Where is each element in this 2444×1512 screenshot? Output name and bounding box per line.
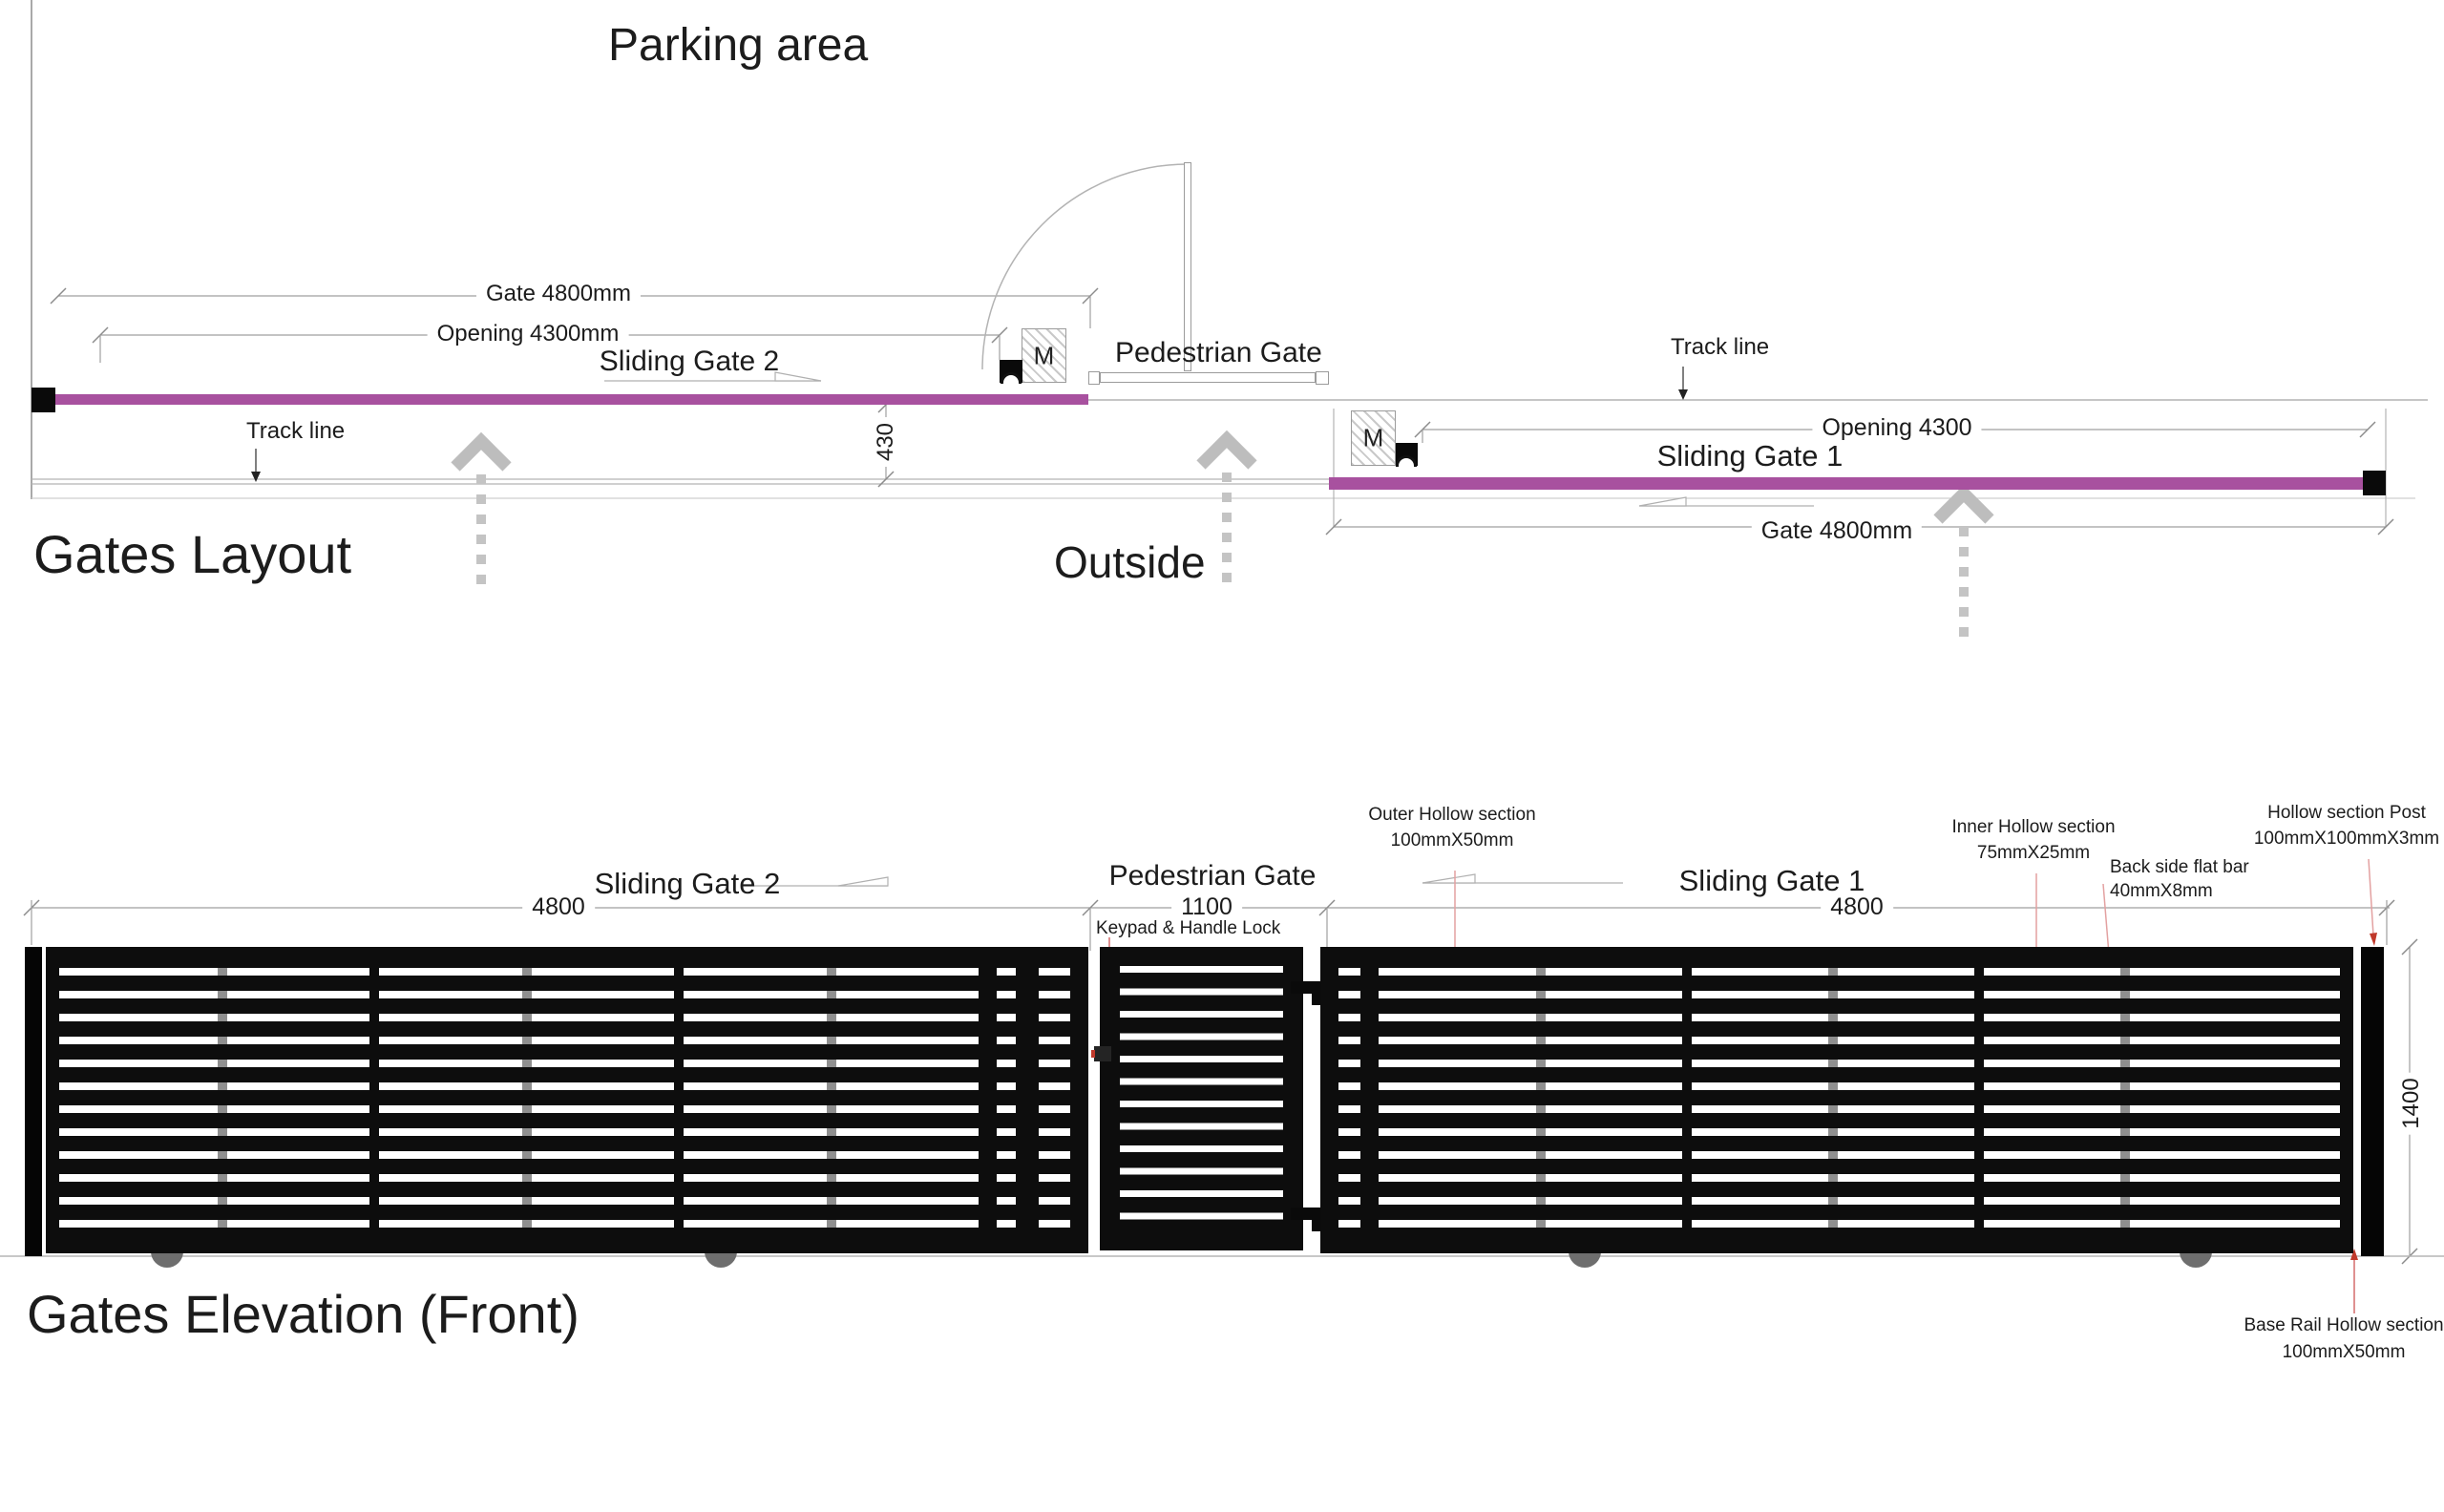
- gate-slat-column: [836, 968, 980, 1228]
- gate-height-dim: 1400: [2398, 1072, 2425, 1134]
- gates-layout-title: Gates Layout: [33, 523, 351, 585]
- gate1-gate-dim: Gate 4800mm: [1752, 517, 1922, 545]
- gates-elevation-title: Gates Elevation (Front): [27, 1283, 579, 1345]
- keypad-icon: [1094, 1046, 1111, 1061]
- gate1-motor-label: M: [1363, 424, 1384, 453]
- gate-slat-column: [1974, 968, 1984, 1228]
- gate2-opening-dim: Opening 4300mm: [428, 321, 629, 347]
- gate-slat-column: [1838, 968, 1974, 1228]
- ped-gate-width-dim: 1100: [1171, 893, 1242, 921]
- gate-slat-column: [1828, 968, 1838, 1228]
- track-offset-dim: 430: [873, 417, 899, 467]
- hinge-icon: [1312, 1220, 1320, 1231]
- ped-gate-jamb-left: [1088, 371, 1100, 385]
- gate-slat-column: [1120, 966, 1283, 1231]
- gate-slat-column: [827, 968, 836, 1228]
- inner-hollow-label-2: 75mmX25mm: [1977, 843, 2090, 864]
- gate-slat-column: [379, 968, 522, 1228]
- gate-slat-column: [684, 968, 827, 1228]
- gate-slat-column: [1334, 968, 1365, 1228]
- gate2-leaf-plan: [34, 394, 1088, 405]
- gate1-leaf-plan: [1329, 477, 2363, 490]
- gate2-plan-label: Sliding Gate 2: [600, 346, 779, 378]
- gate-slat-column: [2130, 968, 2340, 1228]
- gate-slat-column: [1984, 968, 2120, 1228]
- gate2-elev-label: Sliding Gate 2: [595, 867, 781, 901]
- parking-area-title: Parking area: [608, 19, 868, 72]
- ped-gate-lock-label: Keypad & Handle Lock: [1096, 918, 1280, 939]
- base-rail-label-1: Base Rail Hollow section: [2244, 1315, 2443, 1336]
- gate-slat-column: [1365, 968, 1379, 1228]
- gate-slat-column: [1692, 968, 1828, 1228]
- gate2-motor-box: M: [1022, 328, 1066, 383]
- gate-slat-column: [674, 968, 684, 1228]
- gate1-plan-label: Sliding Gate 1: [1657, 439, 1844, 473]
- gate-slat-column: [1021, 968, 1034, 1228]
- base-rail-label-2: 100mmX50mm: [2283, 1342, 2406, 1363]
- right-post: [2361, 947, 2384, 1256]
- gate-slat-column: [1379, 968, 1536, 1228]
- gate-slat-column: [2120, 968, 2130, 1228]
- gate2-end-block: [32, 388, 55, 412]
- gate2-elevation: [46, 947, 1088, 1253]
- gate-slat-column: [369, 968, 379, 1228]
- gate2-width-dim: 4800: [522, 893, 595, 921]
- gate-slat-column: [1536, 968, 1546, 1228]
- left-post: [25, 947, 42, 1256]
- gate-slat-column: [1682, 968, 1692, 1228]
- ped-gate-plan-label: Pedestrian Gate: [1115, 337, 1322, 369]
- track-line-label-left: Track line: [246, 418, 345, 445]
- track-line-label-right: Track line: [1671, 334, 1769, 361]
- flat-bar-label-1: Back side flat bar: [2110, 857, 2249, 878]
- gate1-elevation: [1320, 947, 2353, 1253]
- post-label-2: 100mmX100mmX3mm: [2254, 829, 2439, 850]
- gate1-end-block: [2363, 471, 2386, 495]
- ped-gate-jamb-right: [1316, 371, 1329, 385]
- ped-gate-elevation: [1100, 947, 1303, 1250]
- outer-hollow-label-2: 100mmX50mm: [1391, 830, 1514, 851]
- gate-slat-column: [1034, 968, 1075, 1228]
- gates-drawing-canvas: Parking area Gate 4800mm Opening 4300mm …: [0, 0, 2444, 1512]
- hinge-icon: [1312, 994, 1320, 1005]
- post-label-1: Hollow section Post: [2267, 803, 2426, 824]
- outer-hollow-label-1: Outer Hollow section: [1368, 805, 1535, 826]
- ped-gate-threshold: [1100, 372, 1316, 383]
- gate-slat-column: [979, 968, 992, 1228]
- gate-slat-column: [227, 968, 370, 1228]
- flat-bar-label-2: 40mmX8mm: [2110, 881, 2213, 902]
- gate1-opening-dim: Opening 4300: [1812, 414, 1981, 442]
- gate-slat-column: [218, 968, 227, 1228]
- hinge-icon: [1291, 1207, 1320, 1220]
- gate2-gate-dim: Gate 4800mm: [476, 281, 641, 307]
- gate-slat-column: [532, 968, 675, 1228]
- gate-slat-column: [522, 968, 532, 1228]
- gate-slat-column: [59, 968, 218, 1228]
- gate-slat-column: [1546, 968, 1682, 1228]
- gate2-motor-label: M: [1034, 341, 1055, 370]
- gate1-motor-box: M: [1351, 410, 1396, 466]
- inner-hollow-label-1: Inner Hollow section: [1951, 817, 2115, 838]
- outside-label: Outside: [1054, 536, 1206, 588]
- gate-slat-column: [992, 968, 1021, 1228]
- hinge-icon: [1291, 981, 1320, 994]
- gate1-width-dim: 4800: [1821, 893, 1893, 921]
- ped-gate-elev-label: Pedestrian Gate: [1109, 860, 1317, 892]
